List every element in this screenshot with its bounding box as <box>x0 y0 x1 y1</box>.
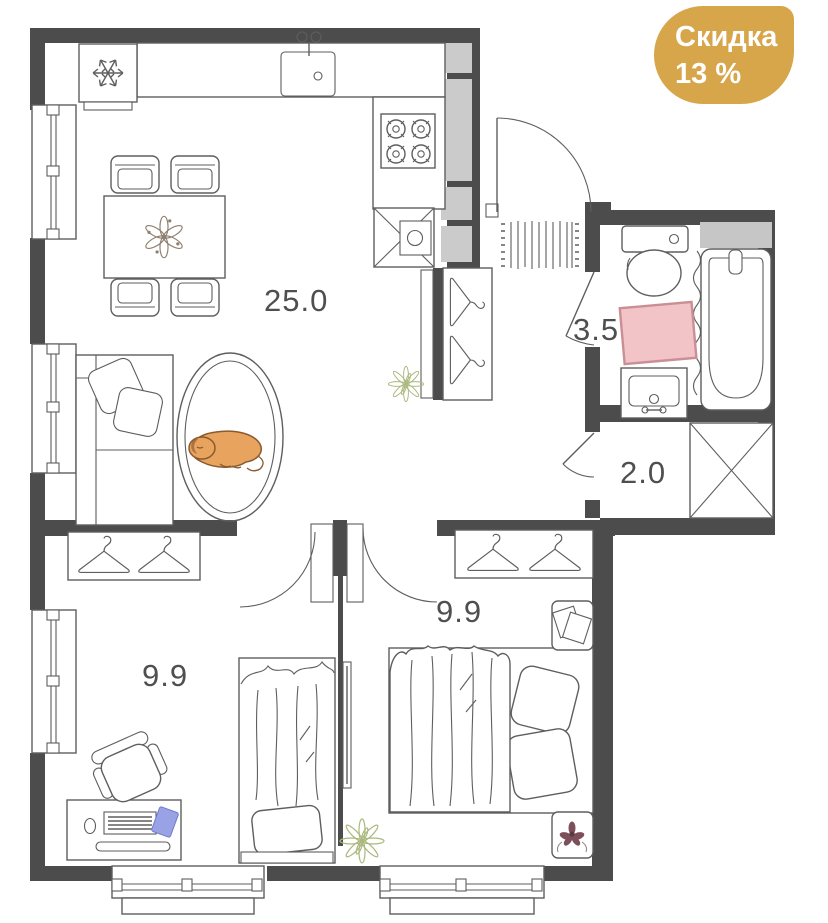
bed-single <box>239 658 335 863</box>
bedroom-right-door <box>363 528 437 602</box>
dining-chair <box>171 156 219 193</box>
discount-badge: Скидка 13 % <box>654 6 794 104</box>
dog <box>189 431 263 471</box>
room-label-bedroom-right: 9.9 <box>436 594 482 629</box>
room-label-bathroom: 3.5 <box>573 312 619 347</box>
plant <box>340 819 384 863</box>
floorplan-canvas: Скидка 13 % <box>0 0 828 923</box>
pillow <box>251 805 323 856</box>
wardrobe-bedroom-right <box>455 530 593 578</box>
nightstand-bottom <box>552 812 593 858</box>
desk <box>67 800 181 860</box>
toilet <box>622 226 688 296</box>
dining-chair <box>111 279 159 316</box>
entrance-door <box>486 118 591 217</box>
dining-chair <box>171 279 219 316</box>
discount-badge-value: 13 % <box>675 56 794 93</box>
desk-chair <box>85 728 173 809</box>
mouse <box>85 819 96 834</box>
keyboard <box>96 842 170 851</box>
dining-table <box>104 196 225 278</box>
window-bedroom-right-bottom <box>380 866 544 914</box>
bedroom-left-door <box>240 532 315 607</box>
dog-bed <box>177 353 283 521</box>
plant <box>388 366 423 401</box>
wardrobe-bedroom-left <box>68 532 200 580</box>
shelf <box>700 222 772 248</box>
bath-rug <box>620 302 697 364</box>
discount-badge-title: Скидка <box>675 19 794 56</box>
built-in-closet <box>690 423 773 518</box>
door-jamb-left <box>311 524 333 602</box>
room-label-hallway: 2.0 <box>620 455 666 490</box>
doormat <box>501 221 579 269</box>
door-jamb-right <box>347 524 363 602</box>
pillow <box>505 727 579 801</box>
stove <box>381 114 435 168</box>
sofa <box>76 355 173 525</box>
window-living <box>32 344 76 473</box>
monitor <box>104 812 156 834</box>
bed-double <box>389 646 593 813</box>
bathtub <box>701 249 771 410</box>
nightstand-top <box>552 601 593 650</box>
fridge <box>79 44 137 110</box>
window-bedroom-left-bottom <box>112 866 264 914</box>
bathroom-sink <box>621 368 687 418</box>
room-label-kitchen-living: 25.0 <box>264 283 328 318</box>
hall-wardrobe <box>443 268 492 400</box>
washing-machine <box>374 208 434 267</box>
floorplan[interactable]: 25.0 3.5 2.0 9.9 9.9 <box>0 0 828 923</box>
tv <box>343 662 351 788</box>
hallway-door <box>563 433 594 477</box>
room-label-bedroom-left: 9.9 <box>142 658 188 693</box>
window-bedroom-left-side <box>32 610 76 753</box>
dining-chair <box>111 156 159 193</box>
window-kitchen <box>32 105 76 239</box>
mirror-panel <box>421 270 433 398</box>
